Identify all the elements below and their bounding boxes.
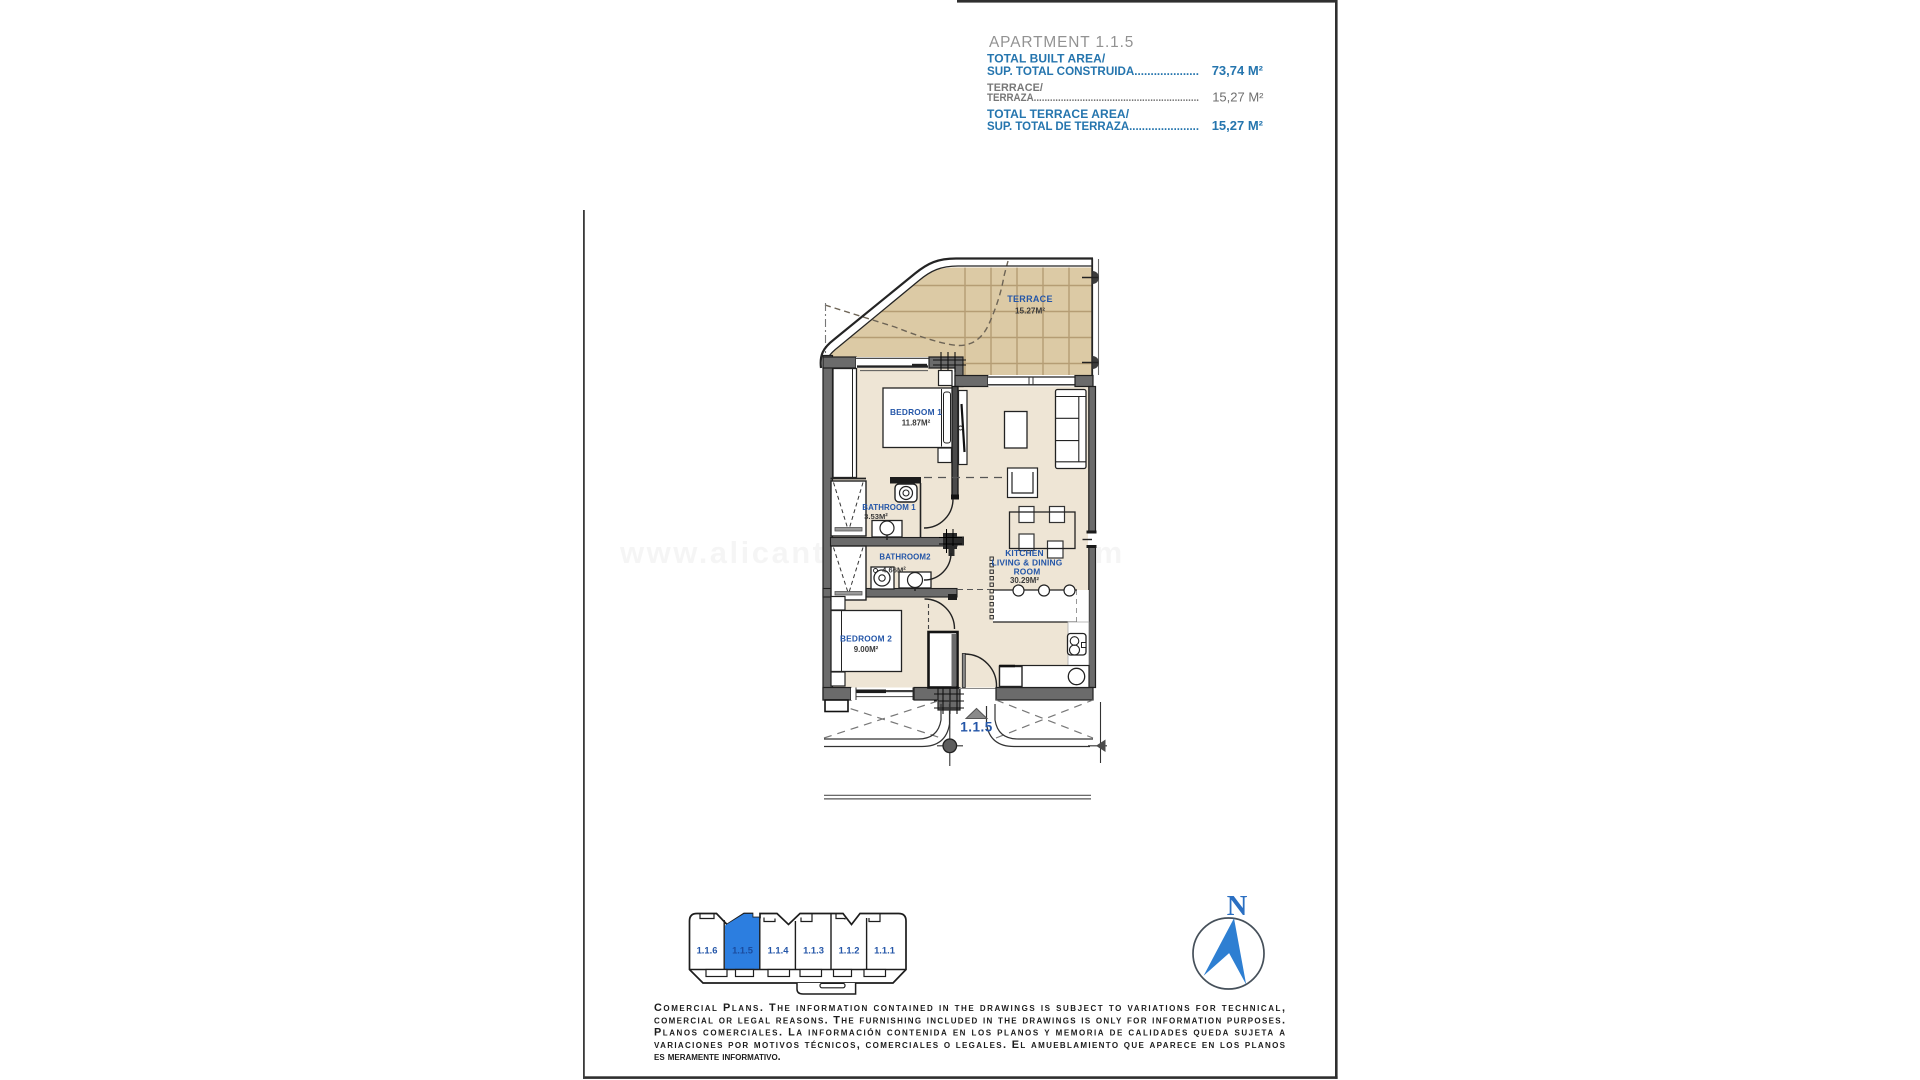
svg-text:1.1.4: 1.1.4 xyxy=(768,945,790,956)
svg-text:SUP. TOTAL CONSTRUIDA.........: SUP. TOTAL CONSTRUIDA...................… xyxy=(987,64,1199,78)
svg-text:1.1.3: 1.1.3 xyxy=(803,945,824,956)
svg-text:SUP. TOTAL DE TERRAZA.........: SUP. TOTAL DE TERRAZA...................… xyxy=(987,119,1199,133)
svg-text:3.53M²: 3.53M² xyxy=(864,512,888,521)
svg-text:es meramente informativo.: es meramente informativo. xyxy=(654,1051,781,1063)
svg-text:APARTMENT 1.1.5: APARTMENT 1.1.5 xyxy=(989,34,1134,51)
svg-text:1.1.6: 1.1.6 xyxy=(697,945,718,956)
svg-text:Planos comerciales. La informa: Planos comerciales. La información conte… xyxy=(654,1027,1285,1039)
svg-text:1.1.1: 1.1.1 xyxy=(874,945,895,956)
svg-text:1.1.5: 1.1.5 xyxy=(960,720,993,735)
svg-text:11.87M²: 11.87M² xyxy=(902,419,931,428)
svg-text:15,27 M²: 15,27 M² xyxy=(1212,90,1264,105)
svg-text:BATHROOM2: BATHROOM2 xyxy=(879,553,931,562)
svg-text:4.66M²: 4.66M² xyxy=(882,566,906,575)
svg-text:N: N xyxy=(1227,891,1248,922)
svg-text:KITCHEN: KITCHEN xyxy=(1005,548,1044,558)
svg-text:15.27M²: 15.27M² xyxy=(1015,307,1045,316)
svg-text:Comercial Plans. The informati: Comercial Plans. The information contain… xyxy=(654,1002,1285,1014)
svg-text:15,27 M²: 15,27 M² xyxy=(1212,118,1264,133)
svg-text:variaciones por motivos técnic: variaciones por motivos técnicos, comerc… xyxy=(654,1039,1286,1051)
svg-text:ROOM: ROOM xyxy=(1014,567,1041,577)
svg-text:9.00M²: 9.00M² xyxy=(854,645,879,654)
svg-text:TERRAZA.......................: TERRAZA.................................… xyxy=(987,92,1199,104)
svg-text:1.1.2: 1.1.2 xyxy=(839,945,860,956)
svg-text:BATHROOM 1: BATHROOM 1 xyxy=(862,503,916,512)
svg-text:BEDROOM 1: BEDROOM 1 xyxy=(890,407,942,417)
svg-text:TERRACE: TERRACE xyxy=(1007,294,1053,304)
svg-text:73,74 M²: 73,74 M² xyxy=(1212,63,1264,78)
svg-text:BEDROOM 2: BEDROOM 2 xyxy=(840,634,892,644)
svg-text:1.1.5: 1.1.5 xyxy=(732,945,753,956)
svg-text:30.29M²: 30.29M² xyxy=(1010,576,1039,585)
